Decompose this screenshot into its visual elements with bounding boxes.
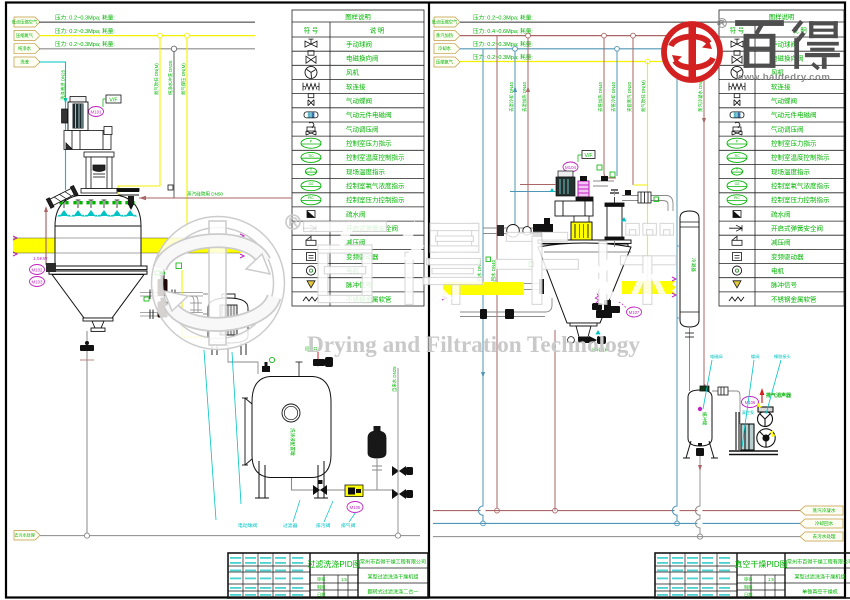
svg-text:纯净水: 纯净水 [18,45,32,52]
svg-text:蒸汽硅管用 DN50: 蒸汽硅管用 DN50 [187,191,223,198]
svg-text:M105: M105 [350,505,362,510]
svg-text:蝶阀: 蝶阀 [751,353,759,360]
svg-text:PIC: PIC [734,196,740,200]
svg-text:排气消声器: 排气消声器 [766,392,792,399]
svg-text:氮气吹扫 DN(M): 氮气吹扫 DN(M) [640,80,647,112]
svg-text:M103: M103 [32,280,44,285]
svg-text:制图: 制图 [317,584,325,591]
svg-text:橡胶接头: 橡胶接头 [774,353,791,360]
svg-text:1:5: 1:5 [341,577,347,582]
svg-text:翻转式过滤洗涤二合一: 翻转式过滤洗涤二合一 [368,589,419,596]
svg-text:压力: 0.2~0.3Mpa; 耗量:: 压力: 0.2~0.3Mpa; 耗量: [473,14,533,22]
svg-text:常州市百得干燥工程有限公司: 常州市百得干燥工程有限公司 [360,559,426,566]
svg-text:M102: M102 [32,268,44,273]
svg-text:控制室温度控制指示: 控制室温度控制指示 [771,153,830,162]
svg-text:自来水 DN25: 自来水 DN25 [391,366,398,392]
svg-text:压力: 0.2~0.3Mpa; 耗量:: 压力: 0.2~0.3Mpa; 耗量: [55,14,115,22]
svg-text:去湿冷却 DN40: 去湿冷却 DN40 [508,81,515,112]
svg-text:不锈钢金属软管: 不锈钢金属软管 [771,294,817,303]
svg-text:现场温度指示: 现场温度指示 [346,167,386,176]
svg-text:控制室氧气浓度指示: 控制室氧气浓度指示 [346,181,405,190]
svg-text:洗液: 洗液 [20,59,29,66]
svg-text:常州市百得干燥工程有限公司: 常州市百得干燥工程有限公司 [787,559,850,566]
svg-text:V/F: V/F [109,97,118,103]
svg-text:压力: 0.2~0.3Mpa; 耗量:: 压力: 0.2~0.3Mpa; 耗量: [473,40,533,48]
svg-text:电机: 电机 [771,266,785,275]
svg-text:M101: M101 [91,110,103,115]
svg-text:M106: M106 [745,400,756,405]
svg-text:图样说明: 图样说明 [769,12,795,21]
svg-text:低点压缩空气: 低点压缩空气 [432,19,458,26]
svg-text:压力: 0.2~0.3Mpa; 耗量:: 压力: 0.2~0.3Mpa; 耗量: [55,27,115,35]
svg-text:压力: 0.2~0.3Mpa; 耗量:: 压力: 0.2~0.3Mpa; 耗量: [55,40,115,48]
svg-text:气动蝶阀: 气动蝶阀 [771,96,797,105]
svg-text:手动球阀: 手动球阀 [346,39,372,48]
svg-text:Drying and Filtration Technolo: Drying and Filtration Technology [307,332,641,357]
svg-text:去湿加热 DN40: 去湿加热 DN40 [521,81,528,112]
svg-text:1.5KW: 1.5KW [33,256,48,262]
svg-text:冷却回水: 冷却回水 [815,520,834,527]
svg-text:纯净水冲洗 DN25: 纯净水冲洗 DN25 [167,60,174,95]
svg-text:夹套蒸汽 DN20: 夹套蒸汽 DN20 [626,81,633,112]
svg-text:现场温度指示: 现场温度指示 [771,167,811,176]
svg-text:www.baidedry.com: www.baidedry.com [735,72,830,83]
svg-text:1:5: 1:5 [768,577,774,582]
svg-text:O2: O2 [309,182,314,186]
svg-text:控制室压力控制指示: 控制室压力控制指示 [346,195,405,204]
svg-text:气动调压阀: 气动调压阀 [771,124,804,133]
svg-text:M104: M104 [565,165,577,170]
svg-text:气动蝶阀: 气动蝶阀 [346,96,372,105]
svg-text:脉冲信号: 脉冲信号 [771,280,798,289]
svg-text:真空泵: 真空泵 [742,409,754,415]
svg-text:单锥真空干燥机: 单锥真空干燥机 [802,589,838,596]
svg-text:气动元件电磁阀: 气动元件电磁阀 [771,110,817,119]
svg-text:制图: 制图 [744,584,752,591]
svg-text:过滤器: 过滤器 [283,522,298,529]
svg-text:PIC: PIC [308,196,314,200]
svg-text:压力: 0.4~0.6Mpa; 耗量:: 压力: 0.4~0.6Mpa; 耗量: [473,27,533,35]
svg-text:TIC: TIC [308,154,314,158]
svg-text:控制室压力指示: 控制室压力指示 [346,139,392,148]
svg-text:图样说明: 图样说明 [345,12,371,21]
svg-text:去锥加热 DN40: 去锥加热 DN40 [597,81,604,112]
svg-text:M107: M107 [629,310,640,315]
svg-text:O2: O2 [735,182,740,186]
svg-text:冷凝器: 冷凝器 [690,258,697,272]
svg-text:减压阀: 减压阀 [771,238,791,247]
svg-text:压力: 0.2~0.3Mpa; 耗量:: 压力: 0.2~0.3Mpa; 耗量: [473,53,533,61]
svg-text:蒸汽冷凝水: 蒸汽冷凝水 [813,507,836,514]
svg-text:电磁换向阀: 电磁换向阀 [346,54,379,63]
svg-text:开启式弹簧安全阀: 开启式弹簧安全阀 [771,224,823,233]
svg-text:冷却水: 冷却水 [438,45,452,52]
svg-text:控制室温度控制指示: 控制室温度控制指示 [346,153,405,162]
svg-text:控制室氧气浓度指示: 控制室氧气浓度指示 [771,181,830,190]
svg-text:某型过滤洗涤干燥机组: 某型过滤洗涤干燥机组 [795,574,846,581]
svg-text:审核: 审核 [317,576,326,583]
svg-text:过滤洗涤PID图: 过滤洗涤PID图 [307,559,360,569]
svg-text:某型过滤洗涤干燥机组: 某型过滤洗涤干燥机组 [368,574,419,581]
svg-text:氮气吹扫 DN(M): 氮气吹扫 DN(M) [153,63,160,95]
svg-text:疏水阀: 疏水阀 [346,209,366,218]
svg-text:氮气保压 DN(M): 氮气保压 DN(M) [180,63,187,95]
svg-text:电动球阀: 电动球阀 [238,522,257,529]
svg-text:TIC: TIC [734,154,740,158]
svg-text:符 号: 符 号 [304,26,319,35]
svg-text:缓冲罐: 缓冲罐 [701,412,708,426]
svg-text:洗涤液配置罐: 洗涤液配置罐 [289,428,296,456]
svg-text:说 明: 说 明 [370,26,385,35]
svg-text:排污阀: 排污阀 [316,522,331,529]
svg-text:疏水阀: 疏水阀 [771,209,791,218]
svg-text:去锥冷却 DN40: 去锥冷却 DN40 [610,81,617,112]
svg-text:气动调压阀: 气动调压阀 [346,124,379,133]
svg-text:风机: 风机 [346,68,360,77]
svg-text:软连接: 软连接 [346,82,366,91]
svg-text:真空干燥PID图: 真空干燥PID图 [734,559,787,569]
svg-text:电磁阀: 电磁阀 [710,353,723,360]
svg-text:排气阀: 排气阀 [341,522,356,529]
svg-text:去污水处理: 去污水处理 [14,532,34,538]
svg-text:控制室压力控制指示: 控制室压力控制指示 [771,195,830,204]
svg-text:V/F: V/F [584,153,592,159]
svg-text:审核: 审核 [744,576,753,583]
svg-text:压缩氮气: 压缩氮气 [16,32,34,39]
svg-text:软连接: 软连接 [771,82,791,91]
svg-text:变频驱动器: 变频驱动器 [771,252,804,261]
svg-text:压缩氮气: 压缩氮气 [436,59,454,66]
svg-text:低点压缩空气: 低点压缩空气 [12,19,38,26]
svg-text:洗涤液进 DN25: 洗涤液进 DN25 [60,69,67,100]
svg-text:蒸汽加热: 蒸汽加热 [436,32,454,39]
svg-text:符 号: 符 号 [730,26,745,35]
svg-text:控制室压力指示: 控制室压力指示 [771,139,817,148]
svg-text:气动元件电磁阀: 气动元件电磁阀 [346,110,392,119]
svg-text:去污水处理: 去污水处理 [813,533,836,540]
